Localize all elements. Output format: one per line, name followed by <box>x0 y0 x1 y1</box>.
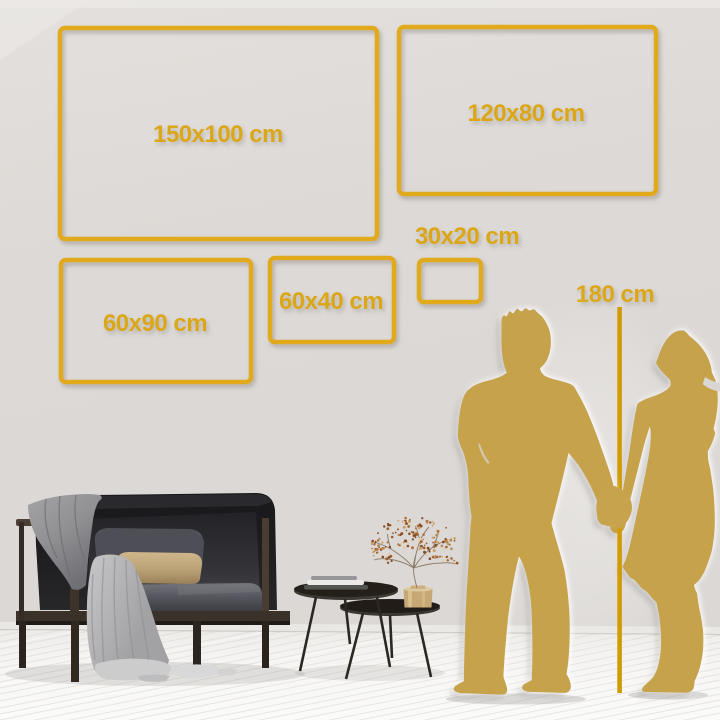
svg-text:150x100 cm: 150x100 cm <box>153 121 283 148</box>
svg-text:60x90 cm: 60x90 cm <box>103 310 207 337</box>
svg-text:60x40 cm: 60x40 cm <box>279 288 383 315</box>
svg-text:120x80 cm: 120x80 cm <box>468 100 585 127</box>
svg-text:30x20 cm: 30x20 cm <box>415 223 519 250</box>
